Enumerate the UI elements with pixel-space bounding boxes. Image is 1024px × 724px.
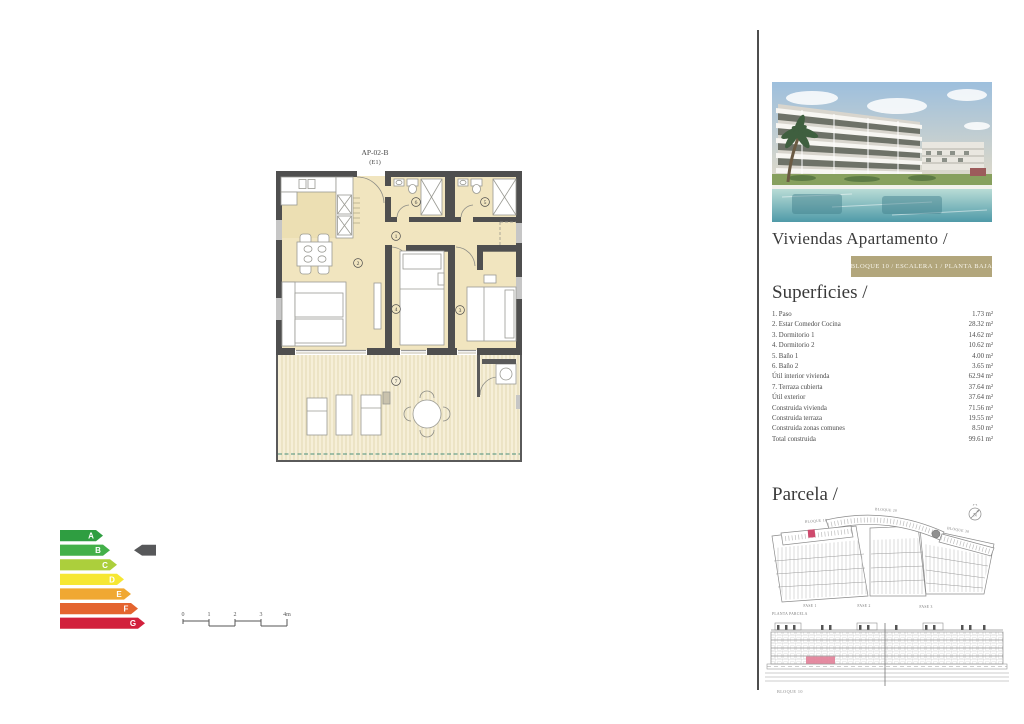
energy-letter-b: B bbox=[95, 546, 101, 555]
row-value: 37.64 m² bbox=[969, 383, 993, 393]
row-label: 1. Paso bbox=[772, 310, 792, 320]
scale-label-1: 1 bbox=[208, 612, 211, 618]
scale-bar-segments bbox=[183, 619, 287, 626]
location-badge: BLOQUE 10 / ESCALERA 1 / PLANTA BAJA bbox=[851, 256, 992, 277]
row-value: 4.00 m² bbox=[972, 352, 993, 362]
energy-letter-c: C bbox=[102, 561, 108, 570]
site-plan: N BLOQUE 10 BLOQUE 20 BLOQUE 30 FASE 1 F… bbox=[768, 504, 1003, 616]
row-value: 62.94 m² bbox=[969, 372, 993, 382]
energy-letter-a: A bbox=[88, 532, 94, 541]
building-render-photo bbox=[772, 82, 992, 222]
far-building bbox=[922, 142, 984, 170]
room-number-2: 2 bbox=[357, 261, 360, 267]
energy-letter-d: D bbox=[109, 575, 115, 584]
room-number-6: 6 bbox=[415, 200, 418, 206]
podium bbox=[765, 664, 1009, 681]
row-value: 71.56 m² bbox=[969, 404, 993, 414]
energy-efficiency-label: A B C D E F G bbox=[58, 528, 170, 636]
room-number-7: 7 bbox=[395, 379, 398, 385]
table-row: 4. Dormitorio 210.62 m² bbox=[772, 341, 993, 351]
table-row: Construida zonas comunes8.50 m² bbox=[772, 424, 993, 434]
row-label: 3. Dormitorio 1 bbox=[772, 331, 814, 341]
bed-2 bbox=[400, 251, 444, 345]
plan-title: AP-02-B bbox=[361, 148, 388, 157]
row-value: 14.62 m² bbox=[969, 331, 993, 341]
row-value: 28.32 m² bbox=[969, 320, 993, 330]
compass-icon: N bbox=[969, 504, 981, 520]
location-badge-label: BLOQUE 10 / ESCALERA 1 / PLANTA BAJA bbox=[851, 263, 993, 270]
row-value: 19.55 m² bbox=[969, 414, 993, 424]
label-planta-parcela: PLANTA PARCELA bbox=[772, 612, 808, 616]
superficies-heading: Superficies / bbox=[772, 282, 868, 304]
highlighted-apartment bbox=[806, 657, 835, 665]
page-title: Viviendas Apartamento / bbox=[772, 229, 1012, 249]
label-fase-1: FASE 1 bbox=[803, 604, 816, 608]
row-label: 4. Dormitorio 2 bbox=[772, 341, 814, 351]
row-label: Construida terraza bbox=[772, 414, 822, 424]
room-number-1: 1 bbox=[395, 234, 398, 240]
scale-label-2: 2 bbox=[234, 612, 237, 618]
row-value: 8.50 m² bbox=[972, 424, 993, 434]
row-value: 3.65 m² bbox=[972, 362, 993, 372]
energy-letter-g: G bbox=[130, 619, 136, 628]
energy-letter-e: E bbox=[116, 590, 122, 599]
room-number-5: 5 bbox=[484, 200, 487, 206]
building-elevation: BLOQUE 10 bbox=[763, 620, 1013, 700]
row-label: Total construida bbox=[772, 435, 816, 445]
floor-plan: AP-02-B (E1) bbox=[270, 143, 530, 468]
energy-rating-indicator-arrow bbox=[134, 545, 156, 556]
row-label: 6. Baño 2 bbox=[772, 362, 798, 372]
energy-letter-f: F bbox=[124, 605, 129, 614]
row-label: Útil interior vivienda bbox=[772, 372, 829, 382]
row-value: 99.61 m² bbox=[969, 435, 993, 445]
table-row: 6. Baño 23.65 m² bbox=[772, 362, 993, 372]
roof-detail bbox=[771, 623, 1003, 630]
parcela-heading: Parcela / bbox=[772, 484, 838, 506]
table-row: Total construida99.61 m² bbox=[772, 435, 993, 445]
label-fase-3: FASE 3 bbox=[919, 605, 932, 609]
label-bloque-10: BLOQUE 10 bbox=[805, 518, 827, 524]
scale-label-3: 3 bbox=[260, 612, 263, 618]
car bbox=[970, 168, 986, 176]
row-label: Construida vivienda bbox=[772, 404, 827, 414]
table-row: Construida terraza19.55 m² bbox=[772, 414, 993, 424]
row-value: 37.64 m² bbox=[969, 393, 993, 403]
room-number-3: 3 bbox=[459, 308, 462, 314]
compass-n: N bbox=[973, 513, 977, 518]
row-value: 10.62 m² bbox=[969, 341, 993, 351]
table-row: 1. Paso1.73 m² bbox=[772, 310, 993, 320]
table-row: 5. Baño 14.00 m² bbox=[772, 352, 993, 362]
energy-bars bbox=[60, 530, 145, 629]
table-row: Útil interior vivienda62.94 m² bbox=[772, 372, 993, 382]
room-number-4: 4 bbox=[395, 307, 398, 313]
table-row: 7. Terraza cubierta37.64 m² bbox=[772, 383, 993, 393]
row-label: 7. Terraza cubierta bbox=[772, 383, 823, 393]
pool-edge bbox=[772, 185, 992, 189]
row-label: Construida zonas comunes bbox=[772, 424, 845, 434]
scale-bar: 0 1 2 3 4m bbox=[178, 608, 294, 634]
label-bloque-30: BLOQUE 30 bbox=[947, 526, 970, 534]
scale-labels: 0 1 2 3 4m bbox=[182, 612, 292, 618]
brochure-page: AP-02-B (E1) bbox=[0, 0, 1024, 724]
vertical-divider bbox=[757, 30, 759, 690]
table-row: Útil exterior37.64 m² bbox=[772, 393, 993, 403]
rotunda bbox=[932, 530, 940, 538]
highlighted-unit bbox=[808, 529, 816, 538]
label-fase-2: FASE 2 bbox=[857, 604, 870, 608]
row-label: 5. Baño 1 bbox=[772, 352, 798, 362]
table-row: 2. Estar Comedor Cocina28.32 m² bbox=[772, 320, 993, 330]
elevation-caption: BLOQUE 10 bbox=[777, 689, 803, 694]
scale-label-4m: 4m bbox=[283, 612, 291, 618]
row-label: 2. Estar Comedor Cocina bbox=[772, 320, 841, 330]
label-bloque-20: BLOQUE 20 bbox=[875, 507, 897, 513]
table-row: 3. Dormitorio 114.62 m² bbox=[772, 331, 993, 341]
scale-label-0: 0 bbox=[182, 612, 185, 618]
superficies-table: 1. Paso1.73 m² 2. Estar Comedor Cocina28… bbox=[772, 310, 993, 445]
row-value: 1.73 m² bbox=[972, 310, 993, 320]
table-row: Construida vivienda71.56 m² bbox=[772, 404, 993, 414]
plan-subtitle: (E1) bbox=[369, 159, 381, 166]
row-label: Útil exterior bbox=[772, 393, 805, 403]
